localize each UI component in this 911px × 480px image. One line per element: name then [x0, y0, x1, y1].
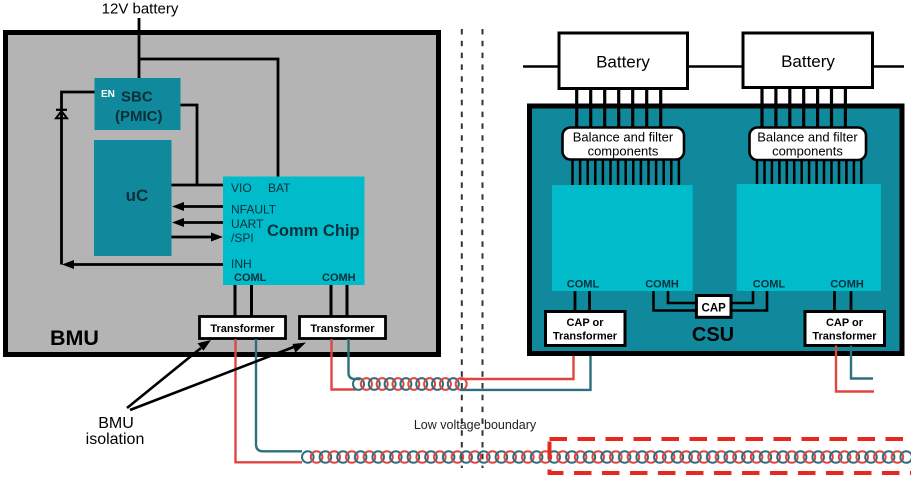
svg-text:CAP or: CAP or [566, 317, 604, 329]
svg-text:INH: INH [231, 257, 252, 271]
svg-text:CAP or: CAP or [826, 317, 864, 329]
svg-text:COML: COML [234, 272, 267, 284]
svg-text:BMU: BMU [98, 415, 134, 432]
svg-text:Balance and filter: Balance and filter [757, 130, 858, 145]
svg-text:CAP: CAP [702, 303, 727, 315]
svg-text:Transformer: Transformer [210, 323, 275, 335]
svg-text:SBC: SBC [121, 89, 153, 106]
svg-text:VIO: VIO [231, 181, 252, 195]
svg-text:components: components [588, 144, 659, 159]
svg-text:Transformer: Transformer [812, 331, 877, 343]
svg-text:EN: EN [101, 89, 115, 100]
svg-text:12V battery: 12V battery [102, 1, 179, 18]
svg-text:uC: uC [126, 186, 149, 205]
svg-text:COML: COML [567, 279, 600, 291]
svg-text:components: components [772, 144, 843, 159]
svg-text:COML: COML [753, 279, 786, 291]
svg-text:UART: UART [231, 217, 264, 231]
svg-text:Low voltage boundary: Low voltage boundary [414, 418, 537, 432]
svg-text:Comm Chip: Comm Chip [267, 222, 360, 240]
svg-text:COMH: COMH [645, 279, 679, 291]
svg-text:COMH: COMH [830, 279, 864, 291]
svg-text:BAT: BAT [268, 181, 291, 195]
svg-text:Transformer: Transformer [310, 323, 375, 335]
svg-text:/SPI: /SPI [231, 231, 254, 245]
svg-text:(PMIC): (PMIC) [115, 108, 163, 125]
svg-text:Battery: Battery [596, 53, 650, 72]
svg-text:Transformer: Transformer [553, 331, 618, 343]
svg-text:Battery: Battery [781, 52, 835, 71]
svg-text:CSU: CSU [692, 324, 734, 346]
svg-text:COMH: COMH [322, 272, 356, 284]
svg-text:NFAULT: NFAULT [231, 203, 277, 217]
svg-text:BMU: BMU [50, 326, 99, 350]
svg-text:Balance and filter: Balance and filter [573, 130, 674, 145]
svg-text:isolation: isolation [86, 431, 145, 448]
